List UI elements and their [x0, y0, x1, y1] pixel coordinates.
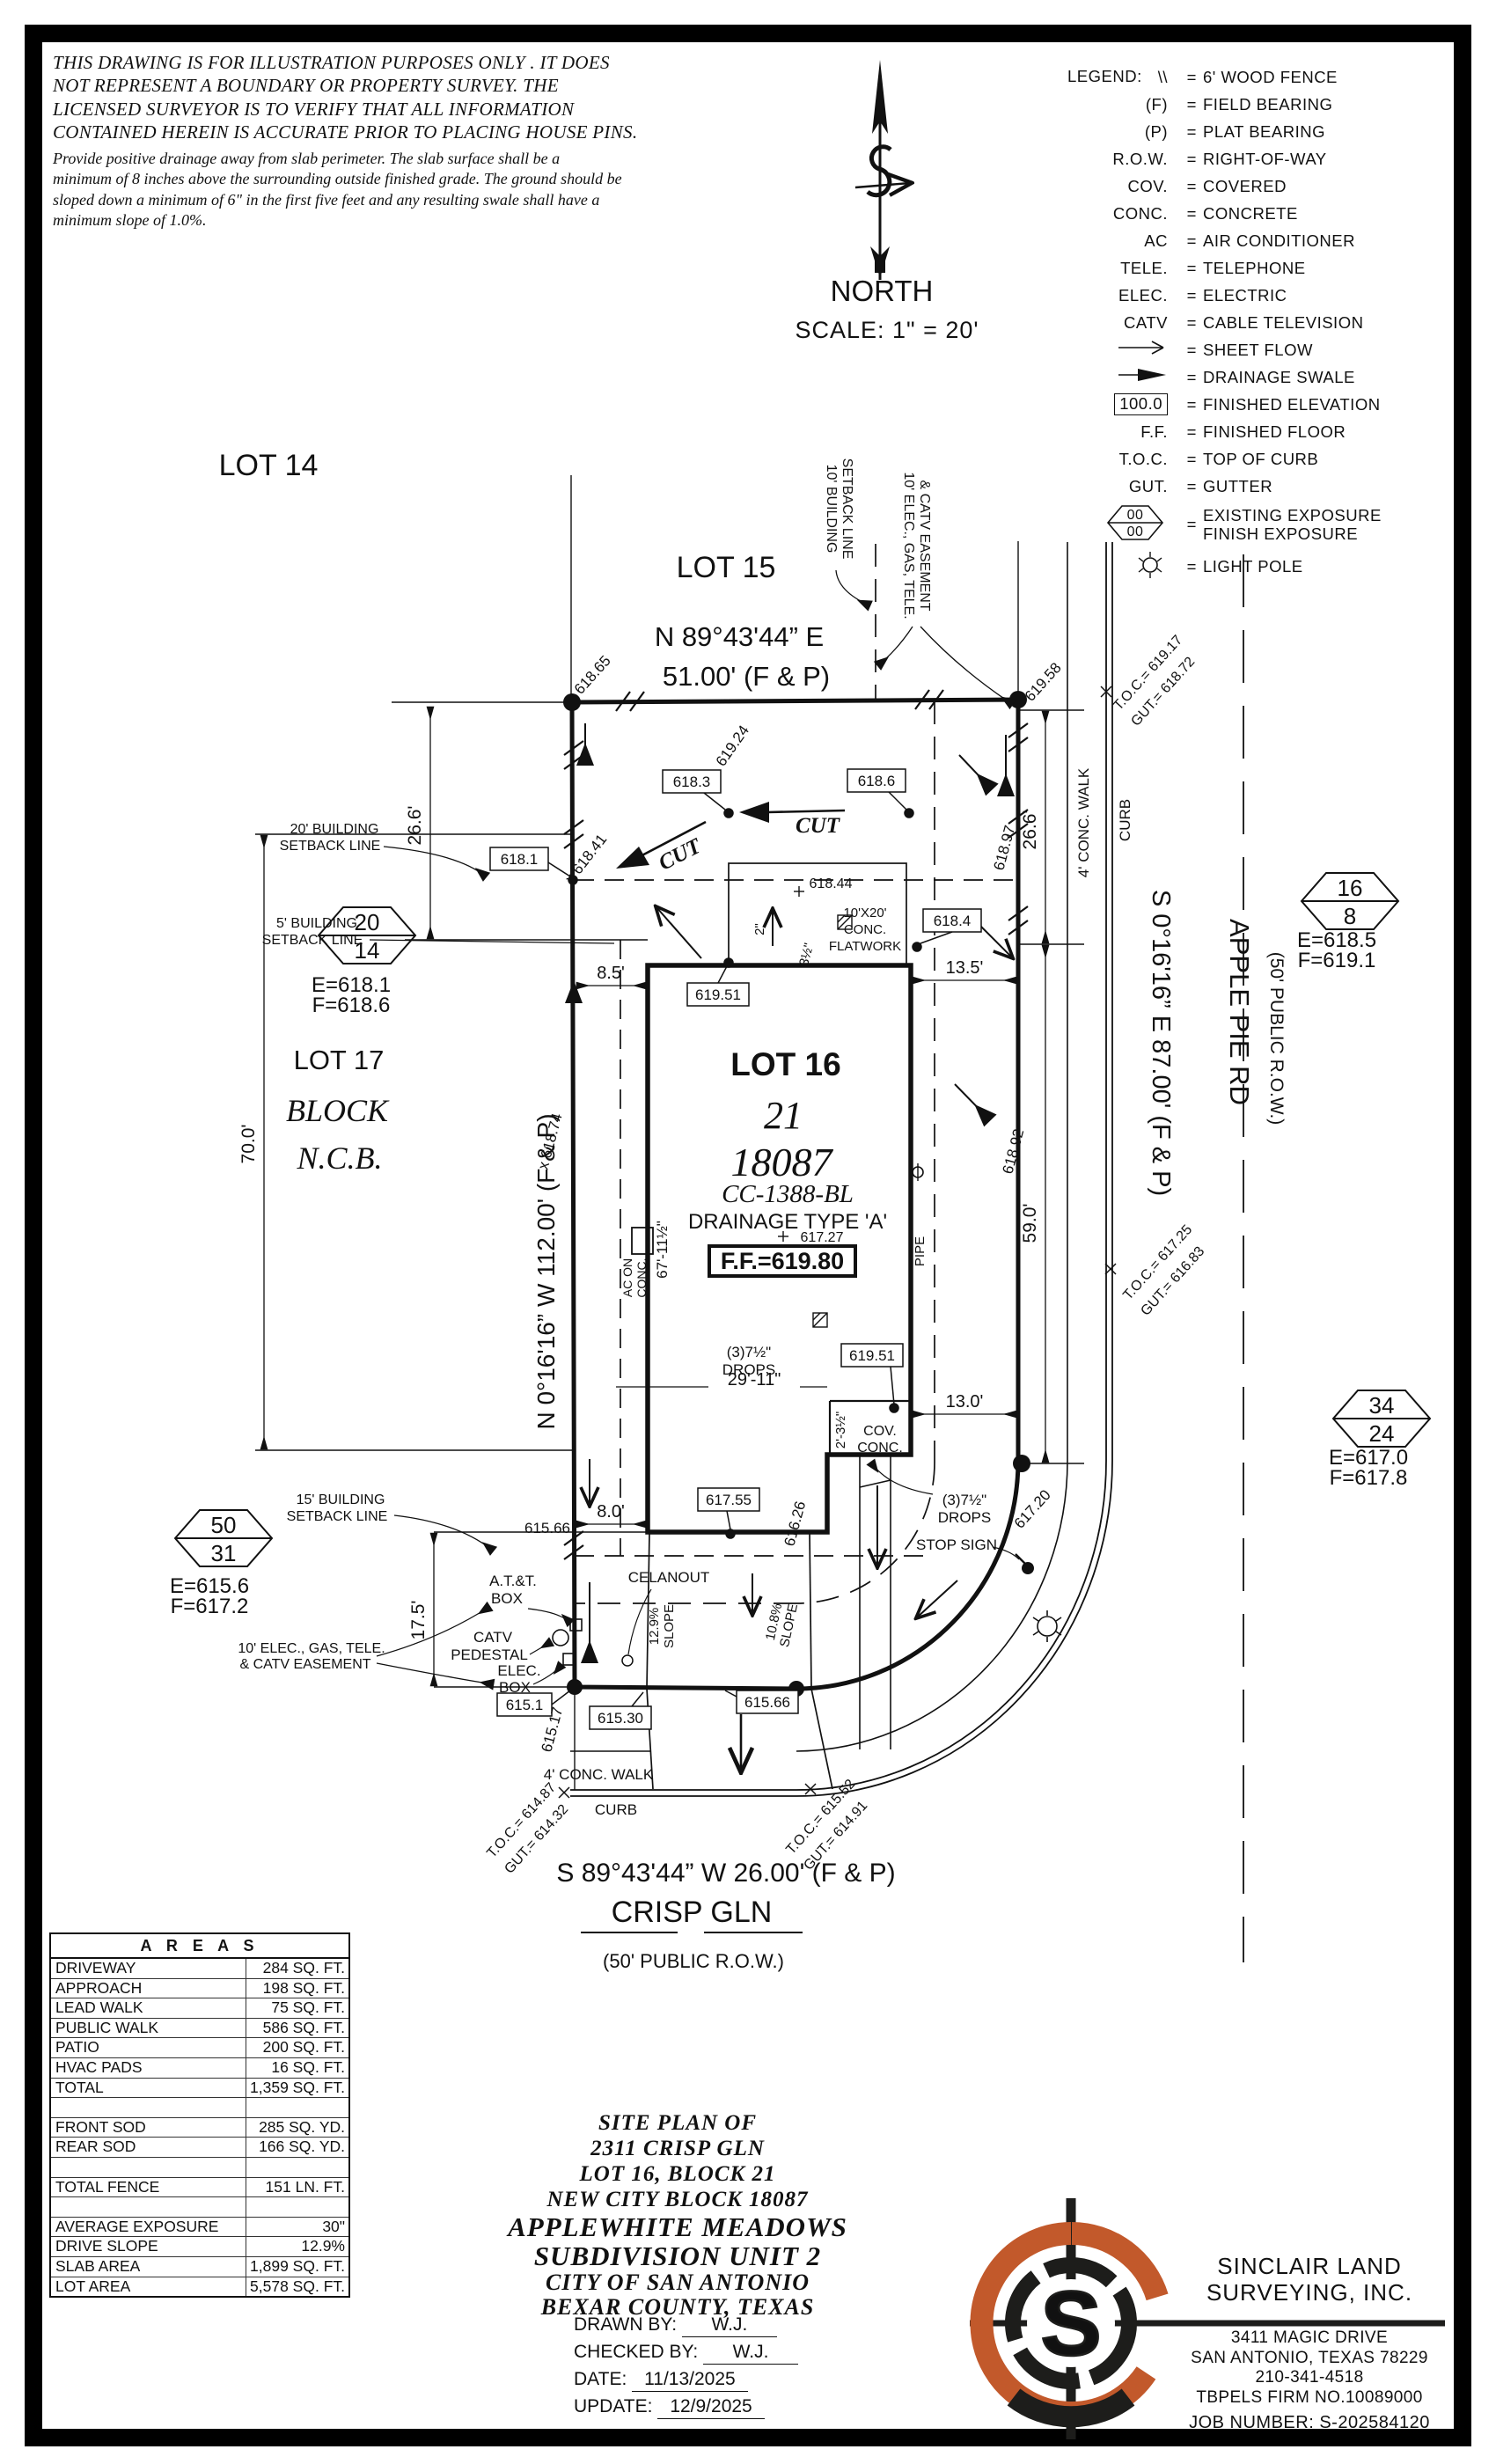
date-row: DATE: 11/13/2025	[574, 2369, 798, 2392]
row-label: HVAC PADS	[51, 2058, 246, 2078]
row-value: 12.9%	[246, 2237, 348, 2256]
catv-pedestal-line2: PEDESTAL	[451, 1646, 528, 1663]
spot-616-26: 616.26	[781, 1500, 810, 1548]
drops2-line1: (3)7½"	[942, 1492, 986, 1508]
flatwork-line3: FLATWORK	[829, 939, 901, 954]
catv-pedestal-line1: CATV	[473, 1629, 513, 1646]
dim-13-0: 13.0'	[946, 1392, 984, 1412]
areas-table: A R E A S DRIVEWAY284 SQ. FT. APPROACH19…	[49, 1932, 350, 2298]
elev-box-618-1: 618.1	[501, 851, 539, 868]
scale-label: SCALE: 1" = 20'	[795, 317, 979, 343]
lot16-label: LOT 16	[730, 1046, 840, 1082]
walk-right-label: 4' CONC. WALK	[1075, 767, 1092, 877]
date-label: DATE:	[574, 2369, 627, 2389]
drops2-line2: DROPS	[938, 1509, 991, 1526]
setback20-line1: 20' BUILDING	[290, 822, 379, 837]
exposure-hex-34-24: 34 24	[1333, 1390, 1430, 1447]
row-label: LEAD WALK	[51, 1998, 246, 2018]
row-label: APPROACH	[51, 1979, 246, 1998]
easement-bottom-line2: & CATV EASEMENT	[239, 1657, 370, 1672]
spot-615-66: 615.66	[524, 1520, 570, 1536]
hex-bottom-value: 8	[1344, 903, 1356, 929]
update-label: UPDATE:	[574, 2396, 652, 2416]
easement-top-leader1	[878, 627, 913, 665]
flatwork-line1: 10'X20'	[843, 906, 886, 920]
table-row: REAR SOD166 SQ. YD.	[51, 2138, 348, 2158]
row-label: DRIVEWAY	[51, 1959, 246, 1978]
dim-8-0: 8.0'	[597, 1502, 625, 1522]
elev-box-618-4: 618.4	[934, 913, 972, 929]
hex-top-value: 16	[1338, 875, 1363, 901]
dim-cov-conc: 2'-3½"	[833, 1412, 848, 1448]
date-value: 11/13/2025	[632, 2369, 748, 2392]
row-value	[246, 2098, 348, 2117]
crisp-gln-label: CRISP GLN	[612, 1896, 773, 1929]
drawing-form: DRAWN BY: W.J. CHECKED BY: W.J. DATE: 11…	[574, 2314, 798, 2424]
block-word-label: BLOCK	[286, 1093, 390, 1128]
setback10-line1: 10' BUILDING	[824, 465, 839, 554]
table-row: APPROACH198 SQ. FT.	[51, 1979, 348, 1999]
ac-on-conc-line1: AC ON	[620, 1258, 634, 1297]
dim-17-5: 17.5'	[408, 1601, 429, 1640]
stop-sign-symbol	[1016, 1554, 1034, 1574]
firm-name-line2: SURVEYING, INC.	[1170, 2279, 1448, 2306]
easement-top-line1: 10' ELEC., GAS, TELE.	[901, 472, 916, 619]
title-block: SITE PLAN OF 2311 CRISP GLN LOT 16, BLOC…	[414, 2110, 942, 2320]
row-label: DRIVE SLOPE	[51, 2237, 246, 2256]
hex-top-value: 20	[355, 909, 380, 935]
elev-box-615-30: 615.30	[598, 1710, 643, 1727]
curb-bottom-label: CURB	[595, 1801, 637, 1818]
easement-bottom-line1: 10' ELEC., GAS, TELE.	[238, 1641, 385, 1656]
row-value: 1,359 SQ. FT.	[246, 2079, 348, 2098]
firm-phone: 210-341-4518	[1170, 2368, 1448, 2388]
spot-618-65: 618.65	[571, 652, 614, 697]
table-row-blank	[51, 2098, 348, 2118]
lead-walk	[860, 1455, 891, 1749]
firm-address1: 3411 MAGIC DRIVE	[1170, 2328, 1448, 2349]
drops2-leader	[871, 1463, 933, 1494]
block-number: 21	[764, 1094, 803, 1137]
row-value: 285 SQ. YD.	[246, 2118, 348, 2138]
elev-box-619-51a: 619.51	[695, 986, 741, 1003]
table-row: PUBLIC WALK586 SQ. FT.	[51, 2019, 348, 2039]
row-value: 16 SQ. FT.	[246, 2058, 348, 2078]
subdivision-name: APPLEWHITE MEADOWS	[414, 2212, 942, 2241]
spot-619-24: 619.24	[713, 722, 752, 769]
firm-info: SINCLAIR LAND SURVEYING, INC. 3411 MAGIC…	[1170, 2253, 1448, 2433]
hex-bottom-value: 24	[1369, 1420, 1395, 1447]
cut-label-1: CUT	[796, 814, 841, 838]
row-label	[51, 2197, 246, 2217]
job-number: JOB NUMBER: S-202584120	[1170, 2413, 1448, 2433]
pipe-symbol	[913, 1163, 923, 1181]
setback10-line2: SETBACK LINE	[840, 458, 854, 560]
spot-618-92: 618.92	[1000, 1127, 1028, 1176]
checked-by-label: CHECKED BY:	[574, 2342, 698, 2362]
cov-conc-line2: CONC.	[857, 1441, 903, 1456]
row-value: 30"	[246, 2218, 348, 2237]
bearing-right: S 0°16'16” E 87.00' (F & P)	[1147, 890, 1175, 1196]
dim-flatwork-2in: 2"	[752, 923, 767, 935]
easement-top-line2: & CATV EASEMENT	[917, 480, 932, 611]
title-line-3: LOT 16, BLOCK 21	[414, 2161, 942, 2187]
setback20-leader	[384, 847, 486, 876]
drawn-by-value: W.J.	[682, 2314, 777, 2337]
lot14-label: LOT 14	[219, 449, 319, 482]
ac-on-conc-line2: CONC.	[634, 1258, 649, 1297]
setback10-leader	[836, 570, 869, 605]
bearing-top-line2: 51.00' (F & P)	[663, 661, 830, 692]
dim-26-6-right: 26.6'	[1020, 810, 1040, 850]
table-row-blank	[51, 2197, 348, 2218]
dim-26-6-left: 26.6'	[405, 806, 425, 846]
att-box-line2: BOX	[491, 1590, 523, 1607]
walk-bottom-label: 4' CONC. WALK	[544, 1766, 654, 1783]
row-value: 586 SQ. FT.	[246, 2019, 348, 2038]
elev-box-618-6: 618.6	[858, 773, 896, 789]
update-row: UPDATE: 12/9/2025	[574, 2396, 798, 2419]
row-value: 75 SQ. FT.	[246, 1998, 348, 2018]
dim-59-0: 59.0'	[1020, 1204, 1040, 1243]
table-row: TOTAL FENCE151 LN. FT.	[51, 2178, 348, 2198]
row-label: SLAB AREA	[51, 2257, 246, 2277]
table-row: LOT AREA5,578 SQ. FT.	[51, 2277, 348, 2297]
dim-8-5: 8.5'	[597, 964, 625, 983]
setback15-leader	[394, 1515, 493, 1551]
apple-pie-rd-label: APPLE PIE RD	[1224, 919, 1255, 1105]
catv-pedestal-symbol	[553, 1630, 568, 1646]
easement-bottom-leader2	[377, 1663, 493, 1684]
stop-sign-label: STOP SIGN	[916, 1536, 997, 1553]
bearing-top-line1: N 89°43'44” E	[655, 621, 824, 652]
row-label: FRONT SOD	[51, 2118, 246, 2138]
bearing-bottom: S 89°43'44” W 26.00' (F & P)	[556, 1859, 895, 1888]
checked-by-value: W.J.	[703, 2342, 798, 2365]
row-value: 5,578 SQ. FT.	[246, 2277, 348, 2297]
crisp-gln-row-label: (50' PUBLIC R.O.W.)	[603, 1950, 784, 1972]
city-line: CITY OF SAN ANTONIO	[414, 2270, 942, 2295]
row-label: TOTAL FENCE	[51, 2178, 246, 2197]
spot-618-44: 618.44	[810, 876, 853, 891]
cleanout-symbol	[622, 1655, 633, 1666]
hex-bottom-value: 14	[355, 937, 380, 964]
row-label	[51, 2158, 246, 2177]
spot-618-97: 618.97	[991, 824, 1019, 872]
lot15-label: LOT 15	[677, 551, 776, 584]
cc-number: CC-1388-BL	[722, 1180, 854, 1208]
catv-pedestal-leader	[530, 1642, 551, 1654]
elev-box-615-66: 615.66	[744, 1694, 790, 1711]
elev-box-615-1: 615.1	[506, 1697, 544, 1713]
row-value	[246, 2158, 348, 2177]
table-row: DRIVE SLOPE12.9%	[51, 2237, 348, 2257]
att-box-line1: A.T.&T.	[489, 1573, 537, 1589]
firm-address2: SAN ANTONIO, TEXAS 78229	[1170, 2349, 1448, 2369]
cov-conc-line1: COV.	[863, 1424, 897, 1439]
row-value: 166 SQ. YD.	[246, 2138, 348, 2157]
row-value: 284 SQ. FT.	[246, 1959, 348, 1978]
table-row: DRIVEWAY284 SQ. FT.	[51, 1959, 348, 1979]
row-value	[246, 2197, 348, 2217]
setback15-line1: 15' BUILDING	[297, 1492, 385, 1507]
setback5-line1: 5' BUILDING	[276, 916, 357, 931]
elec-box-line2: BOX	[499, 1679, 531, 1696]
drops1-line1: (3)7½"	[727, 1344, 771, 1360]
drainage-type-label: DRAINAGE TYPE 'A'	[688, 1210, 887, 1234]
table-row: PATIO200 SQ. FT.	[51, 2038, 348, 2058]
title-line-2: 2311 CRISP GLN	[414, 2136, 942, 2161]
row-label: TOTAL	[51, 2079, 246, 2098]
row-label	[51, 2098, 246, 2117]
row-label: PATIO	[51, 2038, 246, 2057]
easement-top-leader2	[920, 627, 1012, 704]
spot-619-58: 619.58	[1022, 659, 1065, 704]
elev-box-617-55: 617.55	[706, 1492, 752, 1508]
title-line-4: NEW CITY BLOCK 18087	[414, 2187, 942, 2212]
drive-slope1-word: SLOPE	[662, 1604, 677, 1648]
firm-name-line1: SINCLAIR LAND	[1170, 2253, 1448, 2279]
table-row: FRONT SOD285 SQ. YD.	[51, 2118, 348, 2138]
exposure-hex-16-8: 16 8	[1302, 873, 1398, 929]
row-value: 200 SQ. FT.	[246, 2038, 348, 2057]
ncb-word-label: N.C.B.	[296, 1140, 382, 1176]
update-value: 12/9/2025	[657, 2396, 764, 2419]
elec-box-line1: ELEC.	[497, 1662, 540, 1679]
pipe-label: PIPE	[913, 1236, 928, 1266]
checked-by-row: CHECKED BY: W.J.	[574, 2342, 798, 2365]
row-value: 1,899 SQ. FT.	[246, 2257, 348, 2277]
table-row-blank	[51, 2158, 348, 2178]
firm-number: TBPELS FIRM NO.10089000	[1170, 2388, 1448, 2409]
hex2-finish: F=619.1	[1298, 949, 1376, 972]
title-line-1: SITE PLAN OF	[414, 2110, 942, 2136]
cut-label-2: CUT	[655, 833, 706, 876]
new-city-block-number: 18087	[731, 1140, 834, 1184]
spot-617-27: 617.27	[801, 1230, 844, 1245]
drawn-by-row: DRAWN BY: W.J.	[574, 2314, 798, 2337]
north-arrow	[855, 60, 910, 280]
drawn-by-label: DRAWN BY:	[574, 2314, 677, 2335]
drops1-line2: DROPS	[722, 1361, 775, 1378]
row-value: 198 SQ. FT.	[246, 1979, 348, 1998]
setback15-line2: SETBACK LINE	[287, 1509, 388, 1524]
areas-table-header: A R E A S	[51, 1934, 348, 1959]
row-label: AVERAGE EXPOSURE	[51, 2218, 246, 2237]
subdivision-unit: SUBDIVISION UNIT 2	[414, 2241, 942, 2270]
dim-13-5: 13.5'	[946, 958, 984, 978]
dim-67-11: 67'-11½"	[654, 1221, 671, 1279]
hex3-finish: F=617.8	[1330, 1466, 1408, 1490]
lot17-label: LOT 17	[294, 1045, 385, 1075]
exposure-hex-50-31: 50 31	[175, 1510, 272, 1566]
row-label: LOT AREA	[51, 2277, 246, 2297]
cleanout-label: CELANOUT	[628, 1569, 710, 1586]
hex1-finish: F=618.6	[312, 994, 391, 1017]
flatwork-line2: CONC.	[844, 922, 886, 937]
hex-top-value: 50	[211, 1512, 237, 1538]
table-row: TOTAL1,359 SQ. FT.	[51, 2079, 348, 2099]
finished-floor-value: F.F.=619.80	[721, 1248, 844, 1274]
hex-bottom-value: 31	[211, 1540, 237, 1566]
hex4-finish: F=617.2	[171, 1595, 249, 1618]
table-row: LEAD WALK75 SQ. FT.	[51, 1998, 348, 2019]
hex-top-value: 34	[1369, 1392, 1395, 1419]
table-row: AVERAGE EXPOSURE30"	[51, 2218, 348, 2238]
table-row: SLAB AREA1,899 SQ. FT.	[51, 2257, 348, 2277]
spot-618-41: x 618.41	[561, 831, 610, 886]
row-label: PUBLIC WALK	[51, 2019, 246, 2038]
curb-right-label: CURB	[1117, 799, 1133, 841]
att-box-leader	[528, 1609, 570, 1623]
elev-box-619-51b: 619.51	[849, 1347, 895, 1364]
row-value: 151 LN. FT.	[246, 2178, 348, 2197]
dim-70-0: 70.0'	[238, 1125, 259, 1164]
apple-pie-road-lines	[570, 542, 1243, 1962]
spot-618-44-tick	[794, 886, 804, 897]
elev-box-618-3: 618.3	[673, 774, 711, 790]
row-label: REAR SOD	[51, 2138, 246, 2157]
apple-pie-row-label: (50' PUBLIC R.O.W.)	[1266, 952, 1287, 1126]
setback20-line2: SETBACK LINE	[280, 839, 381, 854]
drive-slope1-pct: 12.9%	[647, 1608, 662, 1646]
table-row: HVAC PADS16 SQ. FT.	[51, 2058, 348, 2079]
north-label: NORTH	[831, 275, 934, 307]
